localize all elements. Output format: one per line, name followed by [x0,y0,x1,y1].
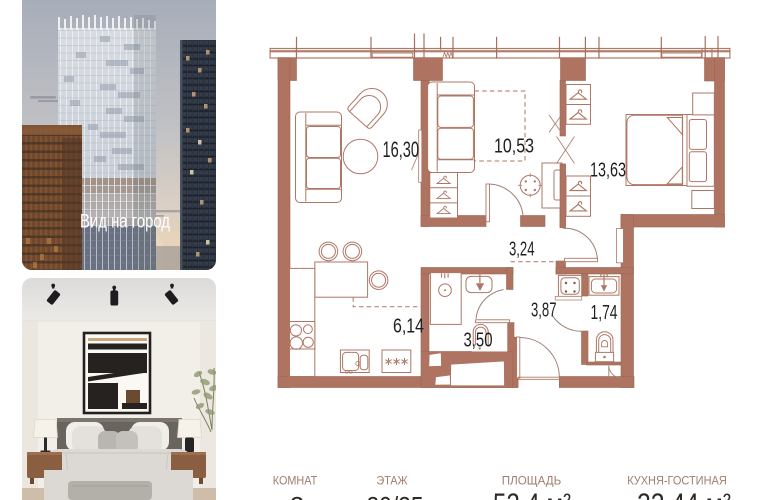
svg-text:КОМНАТ: КОМНАТ [273,473,318,487]
svg-text:16,30: 16,30 [383,137,420,162]
svg-text:2: 2 [290,491,304,500]
svg-text:3,87: 3,87 [531,299,557,322]
svg-text:1,74: 1,74 [591,301,618,324]
svg-text:ПЛОЩАДЬ: ПЛОЩАДЬ [502,473,562,487]
svg-text:ЭТАЖ: ЭТАЖ [377,473,408,487]
svg-text:Вид на город: Вид на город [80,211,170,233]
svg-text:20/25: 20/25 [367,491,424,500]
svg-text:3,50: 3,50 [464,329,493,352]
svg-text:52,4 м²: 52,4 м² [493,488,571,500]
svg-text:10,53: 10,53 [494,134,534,157]
svg-text:3,24: 3,24 [509,238,535,261]
svg-text:13,63: 13,63 [590,159,626,182]
svg-text:22,44 м²: 22,44 м² [637,488,731,500]
svg-text:6,14: 6,14 [393,315,424,338]
svg-text:КУХНЯ-ГОСТИНАЯ: КУХНЯ-ГОСТИНАЯ [627,473,727,487]
